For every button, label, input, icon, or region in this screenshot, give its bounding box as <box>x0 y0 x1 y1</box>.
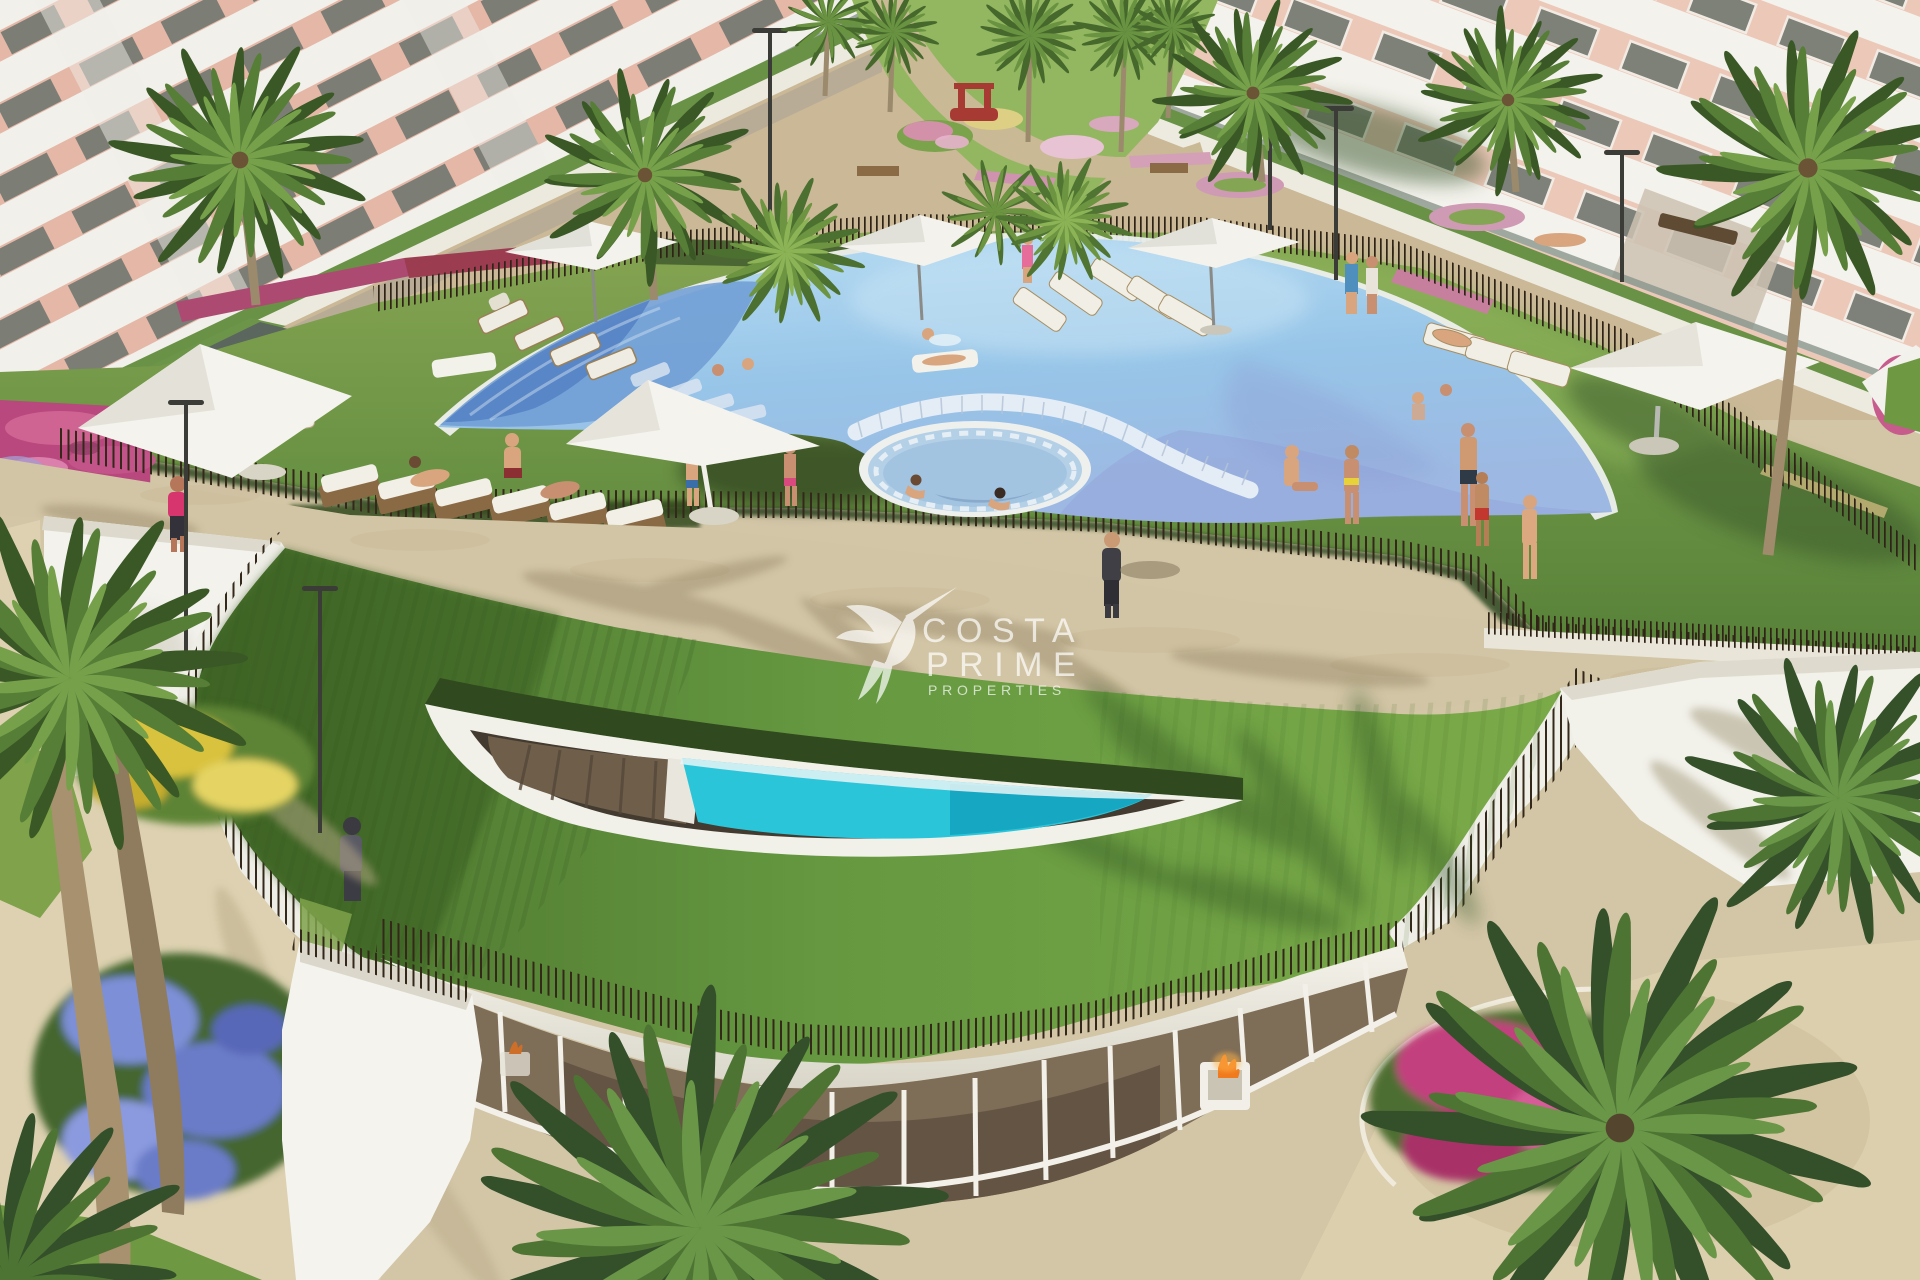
svg-text:COSTA: COSTA <box>922 612 1084 650</box>
svg-text:PRIME: PRIME <box>926 646 1086 684</box>
svg-text:PROPERTIES: PROPERTIES <box>928 682 1066 698</box>
